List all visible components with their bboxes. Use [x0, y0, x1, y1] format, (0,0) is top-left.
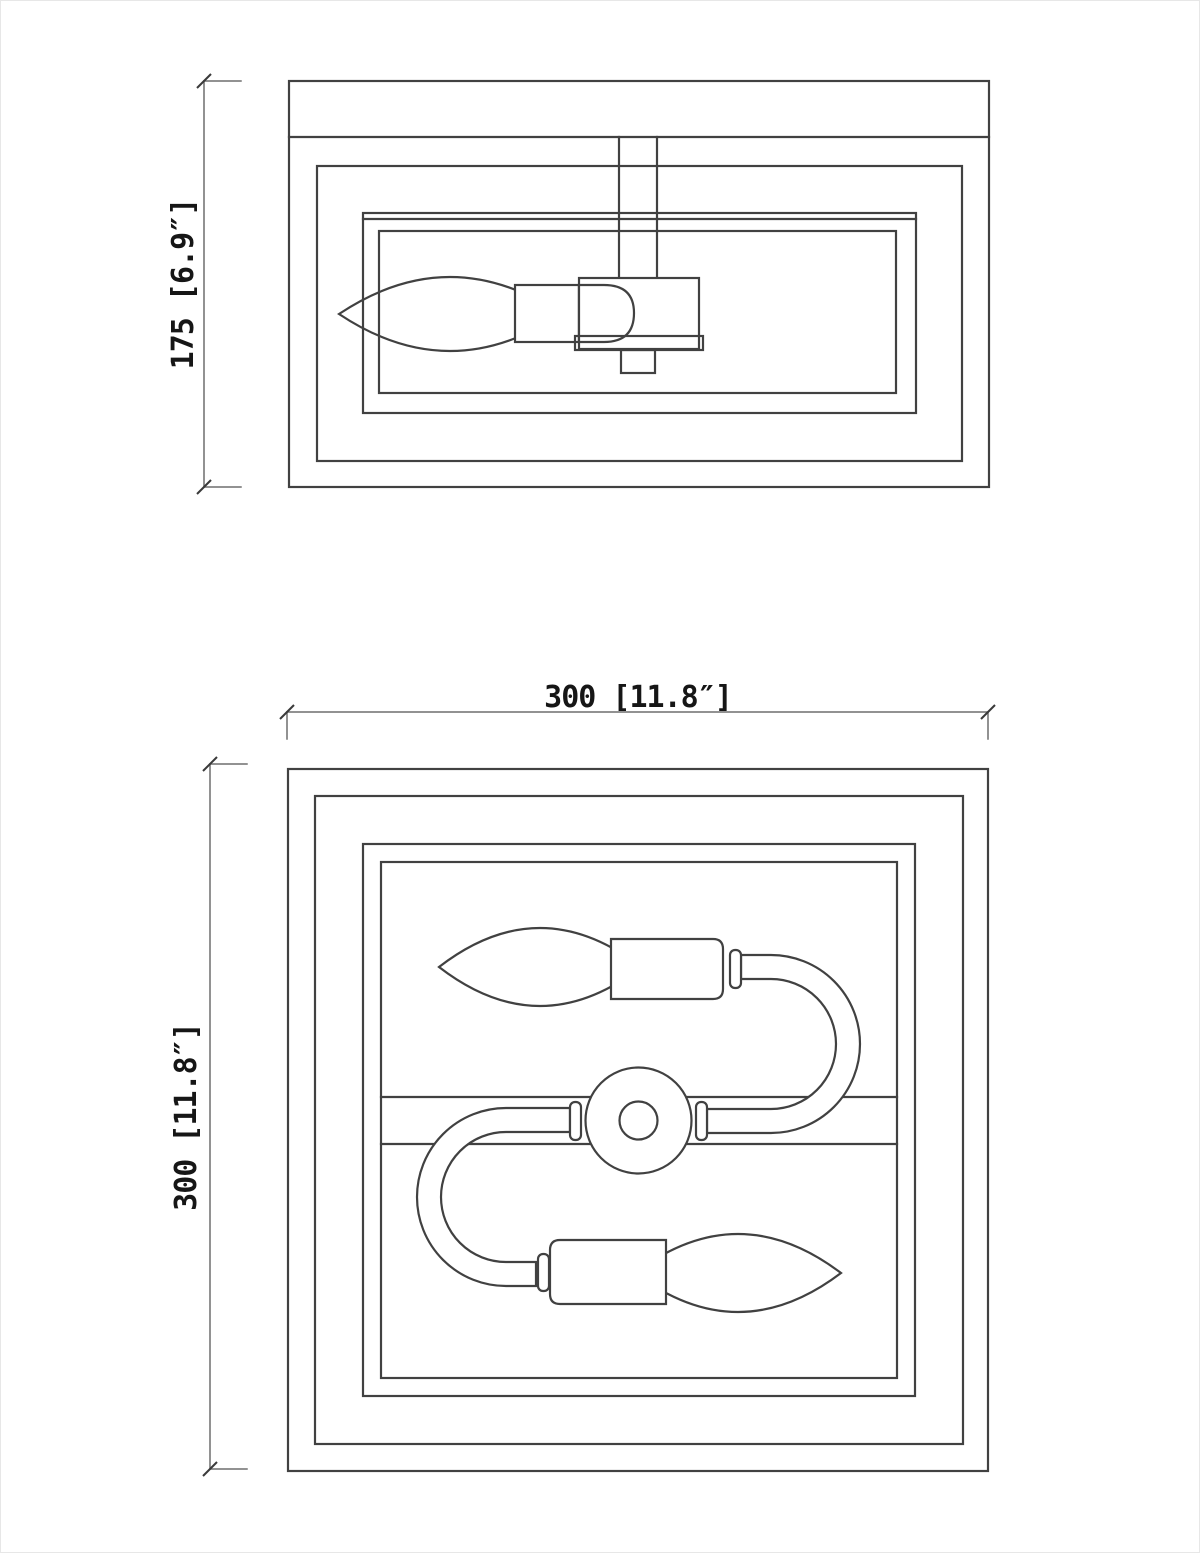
plan-view: [288, 769, 988, 1471]
socket-collar-upper: [730, 950, 741, 988]
dimension-width-plan: 300 [11.8″]: [280, 680, 995, 739]
socket-clip-side: [579, 285, 634, 342]
dimension-label-height-side: 175 [6.9″]: [166, 199, 201, 370]
side-elevation-view: [289, 81, 989, 487]
stem-stub-side: [621, 350, 655, 373]
hub-collar-right: [696, 1102, 707, 1140]
dimension-label-depth-plan: 300 [11.8″]: [169, 1023, 204, 1211]
bulb-neck-side: [515, 285, 579, 342]
technical-drawing-page: 175 [6.9″] 300 [11.8″] 300 [11.8″]: [0, 0, 1200, 1553]
socket-collar-lower: [538, 1254, 549, 1291]
center-hub-hole: [620, 1102, 658, 1140]
dimension-depth-plan: 300 [11.8″]: [169, 757, 247, 1476]
technical-drawing-canvas: 175 [6.9″] 300 [11.8″] 300 [11.8″]: [1, 1, 1200, 1554]
dimension-height-side: 175 [6.9″]: [166, 74, 241, 494]
dimension-label-width-plan: 300 [11.8″]: [544, 680, 732, 715]
socket-body-lower: [550, 1240, 666, 1304]
socket-body-upper: [611, 939, 723, 999]
hub-collar-left: [570, 1102, 581, 1140]
